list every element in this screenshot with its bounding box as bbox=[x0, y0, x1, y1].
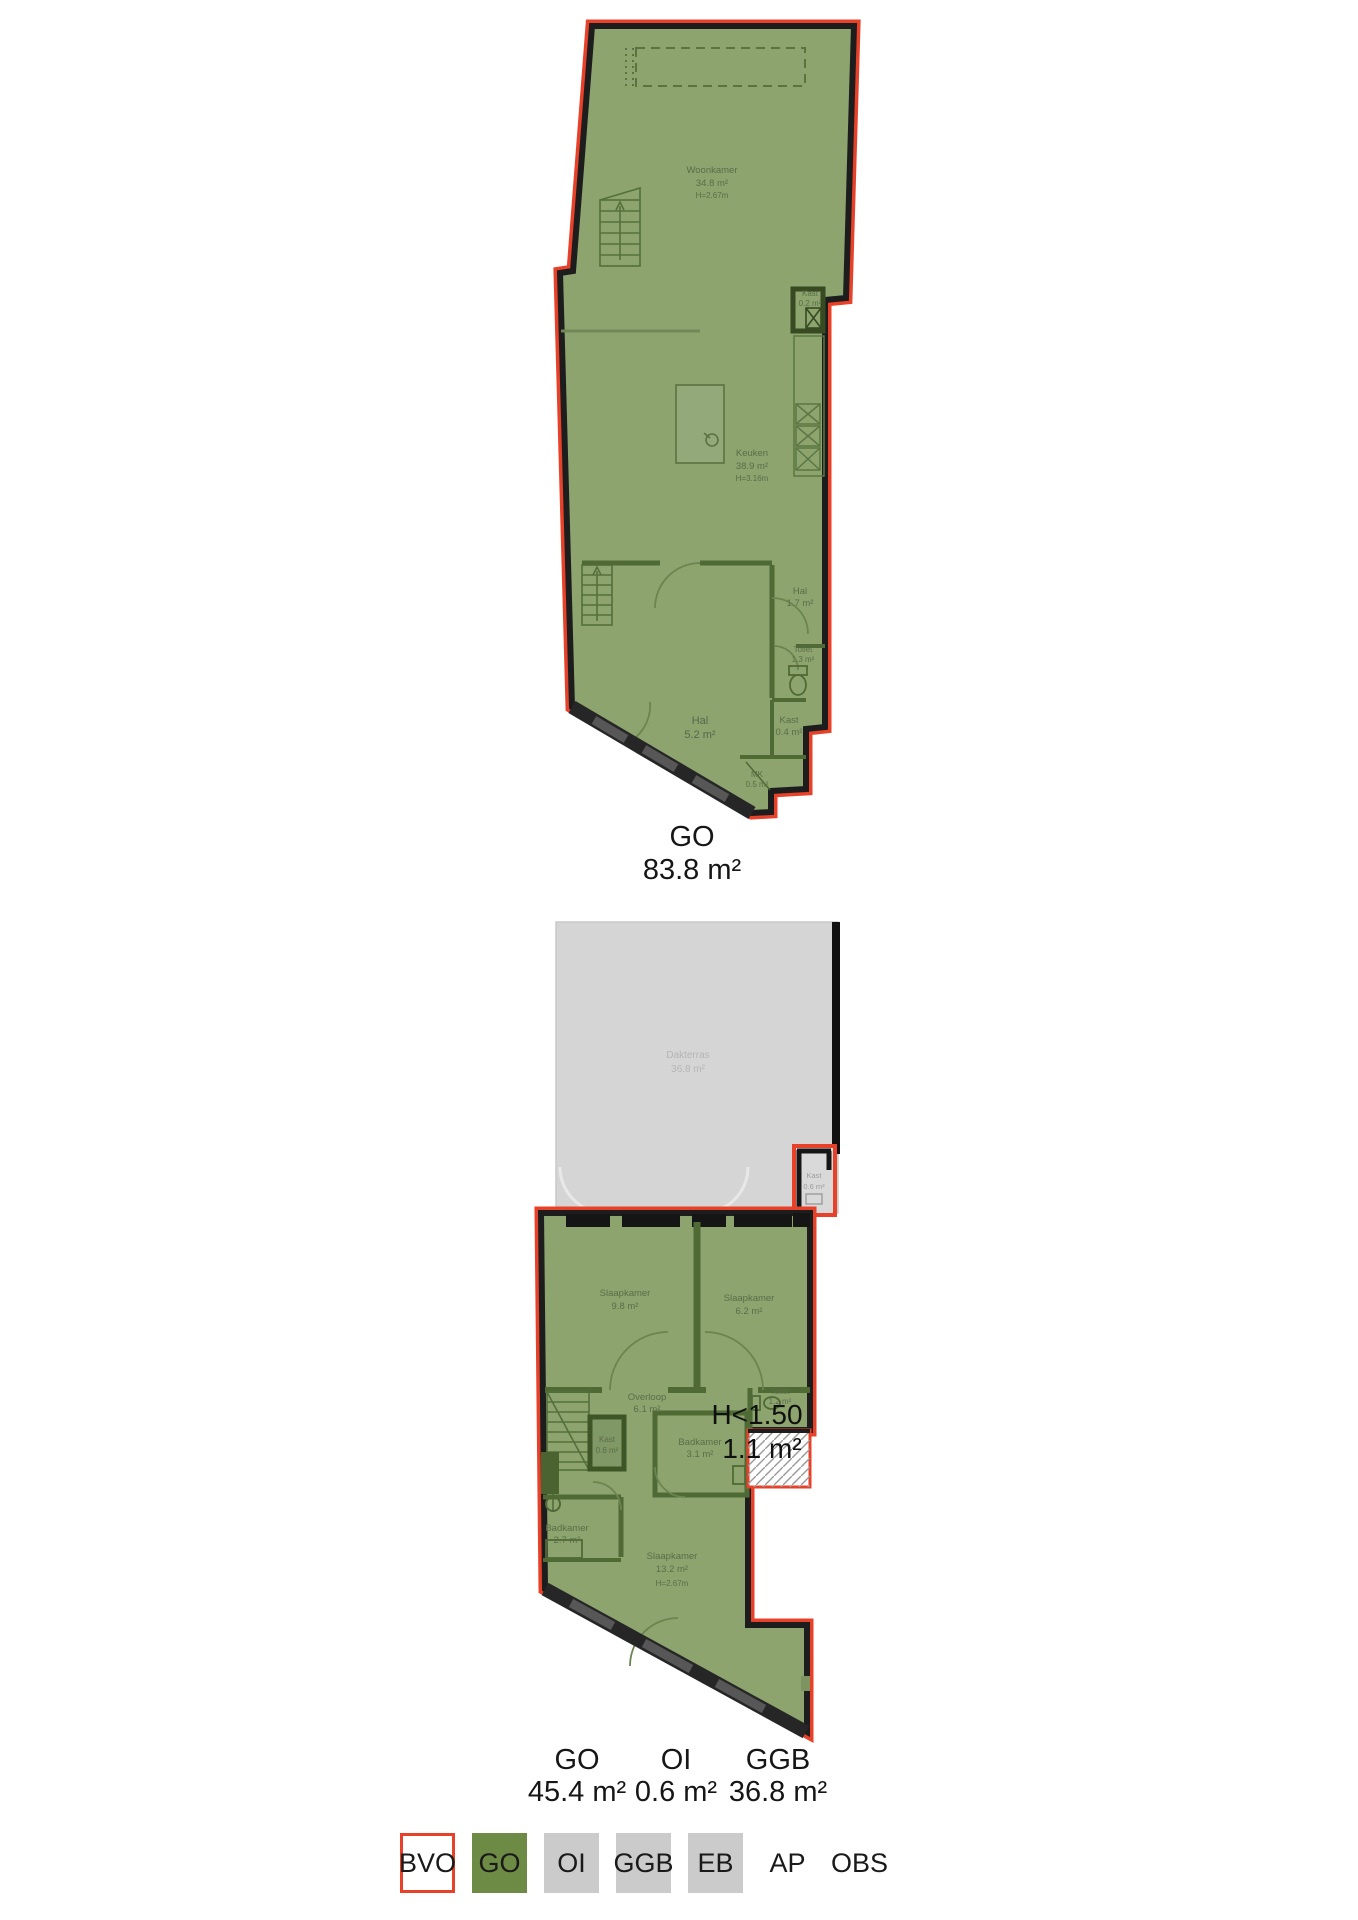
room-name: Woonkamer bbox=[686, 165, 737, 176]
room-name: Kast bbox=[599, 1435, 616, 1444]
room-area: 1.7 m² bbox=[787, 598, 814, 609]
room-name: MK bbox=[751, 770, 764, 779]
room-area: 9.8 m² bbox=[612, 1301, 639, 1312]
right-wall-window bbox=[801, 1676, 810, 1691]
room-area: 38.9 m² bbox=[736, 461, 768, 472]
legend-item-eb: EB bbox=[688, 1833, 743, 1893]
room-name: Dakterras bbox=[666, 1050, 709, 1061]
room-label-keuken: Keuken 38.9 m² H=3.16m bbox=[736, 448, 769, 483]
legend-item-go: GO bbox=[472, 1833, 527, 1893]
low-height-area: 1.1 m² bbox=[722, 1433, 801, 1464]
room-height: H=2.67m bbox=[656, 1579, 689, 1588]
legend-item-ggb: GGB bbox=[616, 1833, 671, 1893]
room-name: Slaapkamer bbox=[600, 1288, 651, 1299]
room-area: 13.2 m² bbox=[656, 1564, 688, 1575]
room-name: Hal bbox=[793, 586, 807, 597]
legend-item-bvo: BVO bbox=[400, 1833, 455, 1893]
room-height: H=2.67m bbox=[696, 191, 729, 200]
plan2-total-go-code: GO bbox=[554, 1744, 599, 1776]
floor-plan-2: Kast 0.6 m² bbox=[528, 922, 840, 1808]
plan1-total-code: GO bbox=[669, 821, 714, 853]
legend-item-oi: OI bbox=[544, 1833, 599, 1893]
floor-plan-1: Woonkamer 34.8 m² H=2.67m Keuken 38.9 m²… bbox=[560, 26, 854, 886]
room-height: H=3.16m bbox=[736, 474, 769, 483]
room-label-toilet-13: Toilet 1.3 m² bbox=[792, 645, 815, 664]
floorplan-drawing: Woonkamer 34.8 m² H=2.67m Keuken 38.9 m²… bbox=[0, 0, 1358, 1920]
shaft bbox=[541, 1452, 559, 1494]
room-area: 0.6 m² bbox=[803, 1182, 825, 1191]
room-name: Badkamer bbox=[545, 1523, 588, 1534]
room-area: 2.7 m² bbox=[554, 1535, 581, 1546]
room-name: Kast bbox=[806, 1171, 822, 1180]
oi-kast-box: Kast 0.6 m² bbox=[794, 1146, 835, 1215]
room-name: Toilet bbox=[794, 645, 813, 654]
room-area: 36.8 m² bbox=[671, 1064, 706, 1075]
room-area: 6.2 m² bbox=[736, 1306, 763, 1317]
room-name: Badkamer bbox=[678, 1437, 721, 1448]
plan2-total-ggb-area: 36.8 m² bbox=[729, 1776, 828, 1808]
room-area: 0.2 m² bbox=[799, 299, 822, 308]
room-name: Slaapkamer bbox=[647, 1551, 698, 1562]
kitchen-island bbox=[676, 385, 724, 463]
room-area: 3.1 m² bbox=[687, 1449, 714, 1460]
room-name: Kast bbox=[802, 289, 819, 298]
room-area: 34.8 m² bbox=[696, 178, 728, 189]
room-name: Toilet bbox=[771, 1387, 790, 1396]
room-name: Hal bbox=[692, 715, 709, 727]
room-area: 5.2 m² bbox=[684, 729, 716, 741]
plan2-total-oi-area: 0.6 m² bbox=[635, 1776, 718, 1808]
plan1-total-area: 83.8 m² bbox=[643, 854, 742, 886]
plan2-total-go-area: 45.4 m² bbox=[528, 1776, 627, 1808]
room-area: 0.4 m² bbox=[776, 727, 803, 738]
room-name: Keuken bbox=[736, 448, 768, 459]
legend: BVO GO OI GGB EB AP OBS bbox=[400, 1833, 887, 1893]
room-name: Overloop bbox=[628, 1392, 667, 1403]
floorplan-page: Woonkamer 34.8 m² H=2.67m Keuken 38.9 m²… bbox=[0, 0, 1358, 1920]
room-name: Kast bbox=[779, 715, 798, 726]
room-area: 6.1 m² bbox=[634, 1404, 661, 1415]
legend-item-ap: AP bbox=[760, 1833, 815, 1893]
low-height-label: H<1.50 bbox=[711, 1399, 802, 1430]
room-label-kast-04: Kast 0.4 m² bbox=[776, 715, 803, 738]
room-area: 1.3 m² bbox=[792, 655, 815, 664]
plan2-total-oi-code: OI bbox=[661, 1744, 692, 1776]
plan2-total-ggb-code: GGB bbox=[746, 1744, 810, 1776]
legend-item-obs: OBS bbox=[832, 1833, 887, 1893]
dakterras-right-wall bbox=[832, 922, 840, 1154]
room-area: 0.6 m² bbox=[596, 1446, 619, 1455]
room-name: Slaapkamer bbox=[724, 1293, 775, 1304]
room-area: 0.5 m² bbox=[746, 780, 769, 789]
